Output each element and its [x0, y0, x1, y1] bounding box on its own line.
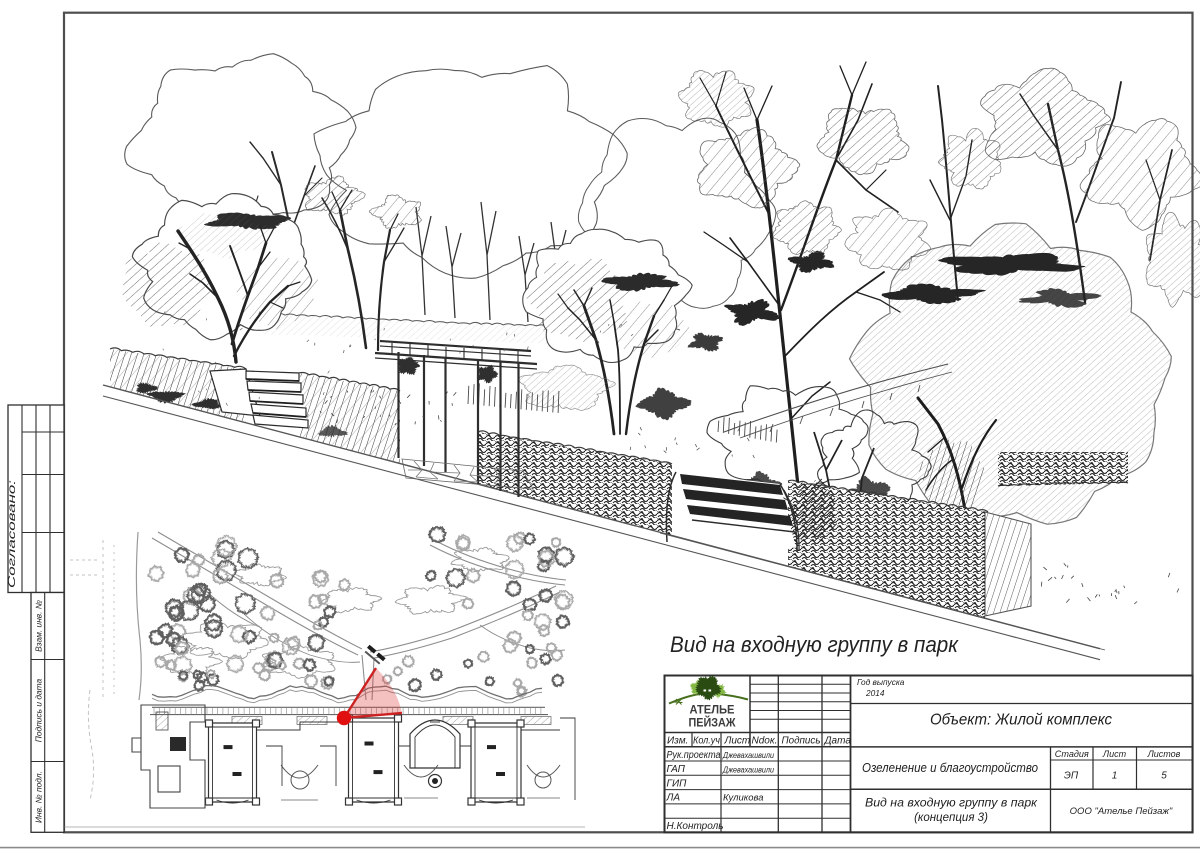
svg-text:Ndок.: Ndок. [752, 736, 778, 747]
svg-text:Вид на входную группу в парк: Вид на входную группу в парк [670, 632, 960, 657]
svg-text:Рук.проекта: Рук.проекта [667, 750, 721, 761]
svg-text:Стадия: Стадия [1055, 749, 1089, 759]
svg-text:Изм.: Изм. [667, 736, 688, 747]
svg-text:ЭП: ЭП [1064, 771, 1079, 782]
svg-text:АТЕЛЬЕ: АТЕЛЬЕ [690, 705, 735, 717]
svg-text:Дата: Дата [824, 736, 852, 747]
svg-text:Н.Контроль: Н.Контроль [667, 821, 724, 832]
svg-text:ЛА: ЛА [666, 793, 681, 804]
svg-text:Согласовано:: Согласовано: [6, 480, 18, 588]
svg-text:Объект: Жилой комплекс: Объект: Жилой комплекс [930, 712, 1112, 729]
svg-text:Вид на входную группу в парк: Вид на входную группу в парк [865, 798, 1038, 810]
svg-text:Листов: Листов [1147, 749, 1181, 759]
svg-text:5: 5 [1161, 771, 1167, 782]
svg-text:Лист: Лист [724, 736, 751, 747]
svg-text:Взам. инв. №: Взам. инв. № [34, 600, 44, 652]
svg-text:Кол.уч: Кол.уч [693, 736, 720, 747]
svg-text:1: 1 [1112, 771, 1118, 782]
svg-text:ООО "Ателье Пейзаж": ООО "Ателье Пейзаж" [1070, 806, 1173, 817]
svg-text:Джевахашвили: Джевахашвили [722, 766, 774, 775]
svg-text:Куликова: Куликова [723, 793, 764, 804]
svg-text:Озеленение и благоустройство: Озеленение и благоустройство [862, 760, 1038, 775]
svg-text:ПЕЙЗАЖ: ПЕЙЗАЖ [689, 717, 737, 730]
svg-text:ГАП: ГАП [667, 764, 686, 775]
svg-text:Подпись и дата: Подпись и дата [34, 678, 44, 742]
svg-text:ГИП: ГИП [667, 778, 688, 789]
svg-text:Подпись: Подпись [782, 736, 821, 747]
svg-text:Инв. № подл.: Инв. № подл. [34, 771, 44, 823]
svg-text:2014: 2014 [865, 688, 885, 698]
svg-text:Год выпуска: Год выпуска [857, 677, 905, 687]
svg-text:Лист: Лист [1102, 749, 1127, 759]
svg-text:Джевахашвили: Джевахашвили [722, 751, 774, 760]
svg-text:(концепция 3): (концепция 3) [914, 812, 988, 824]
